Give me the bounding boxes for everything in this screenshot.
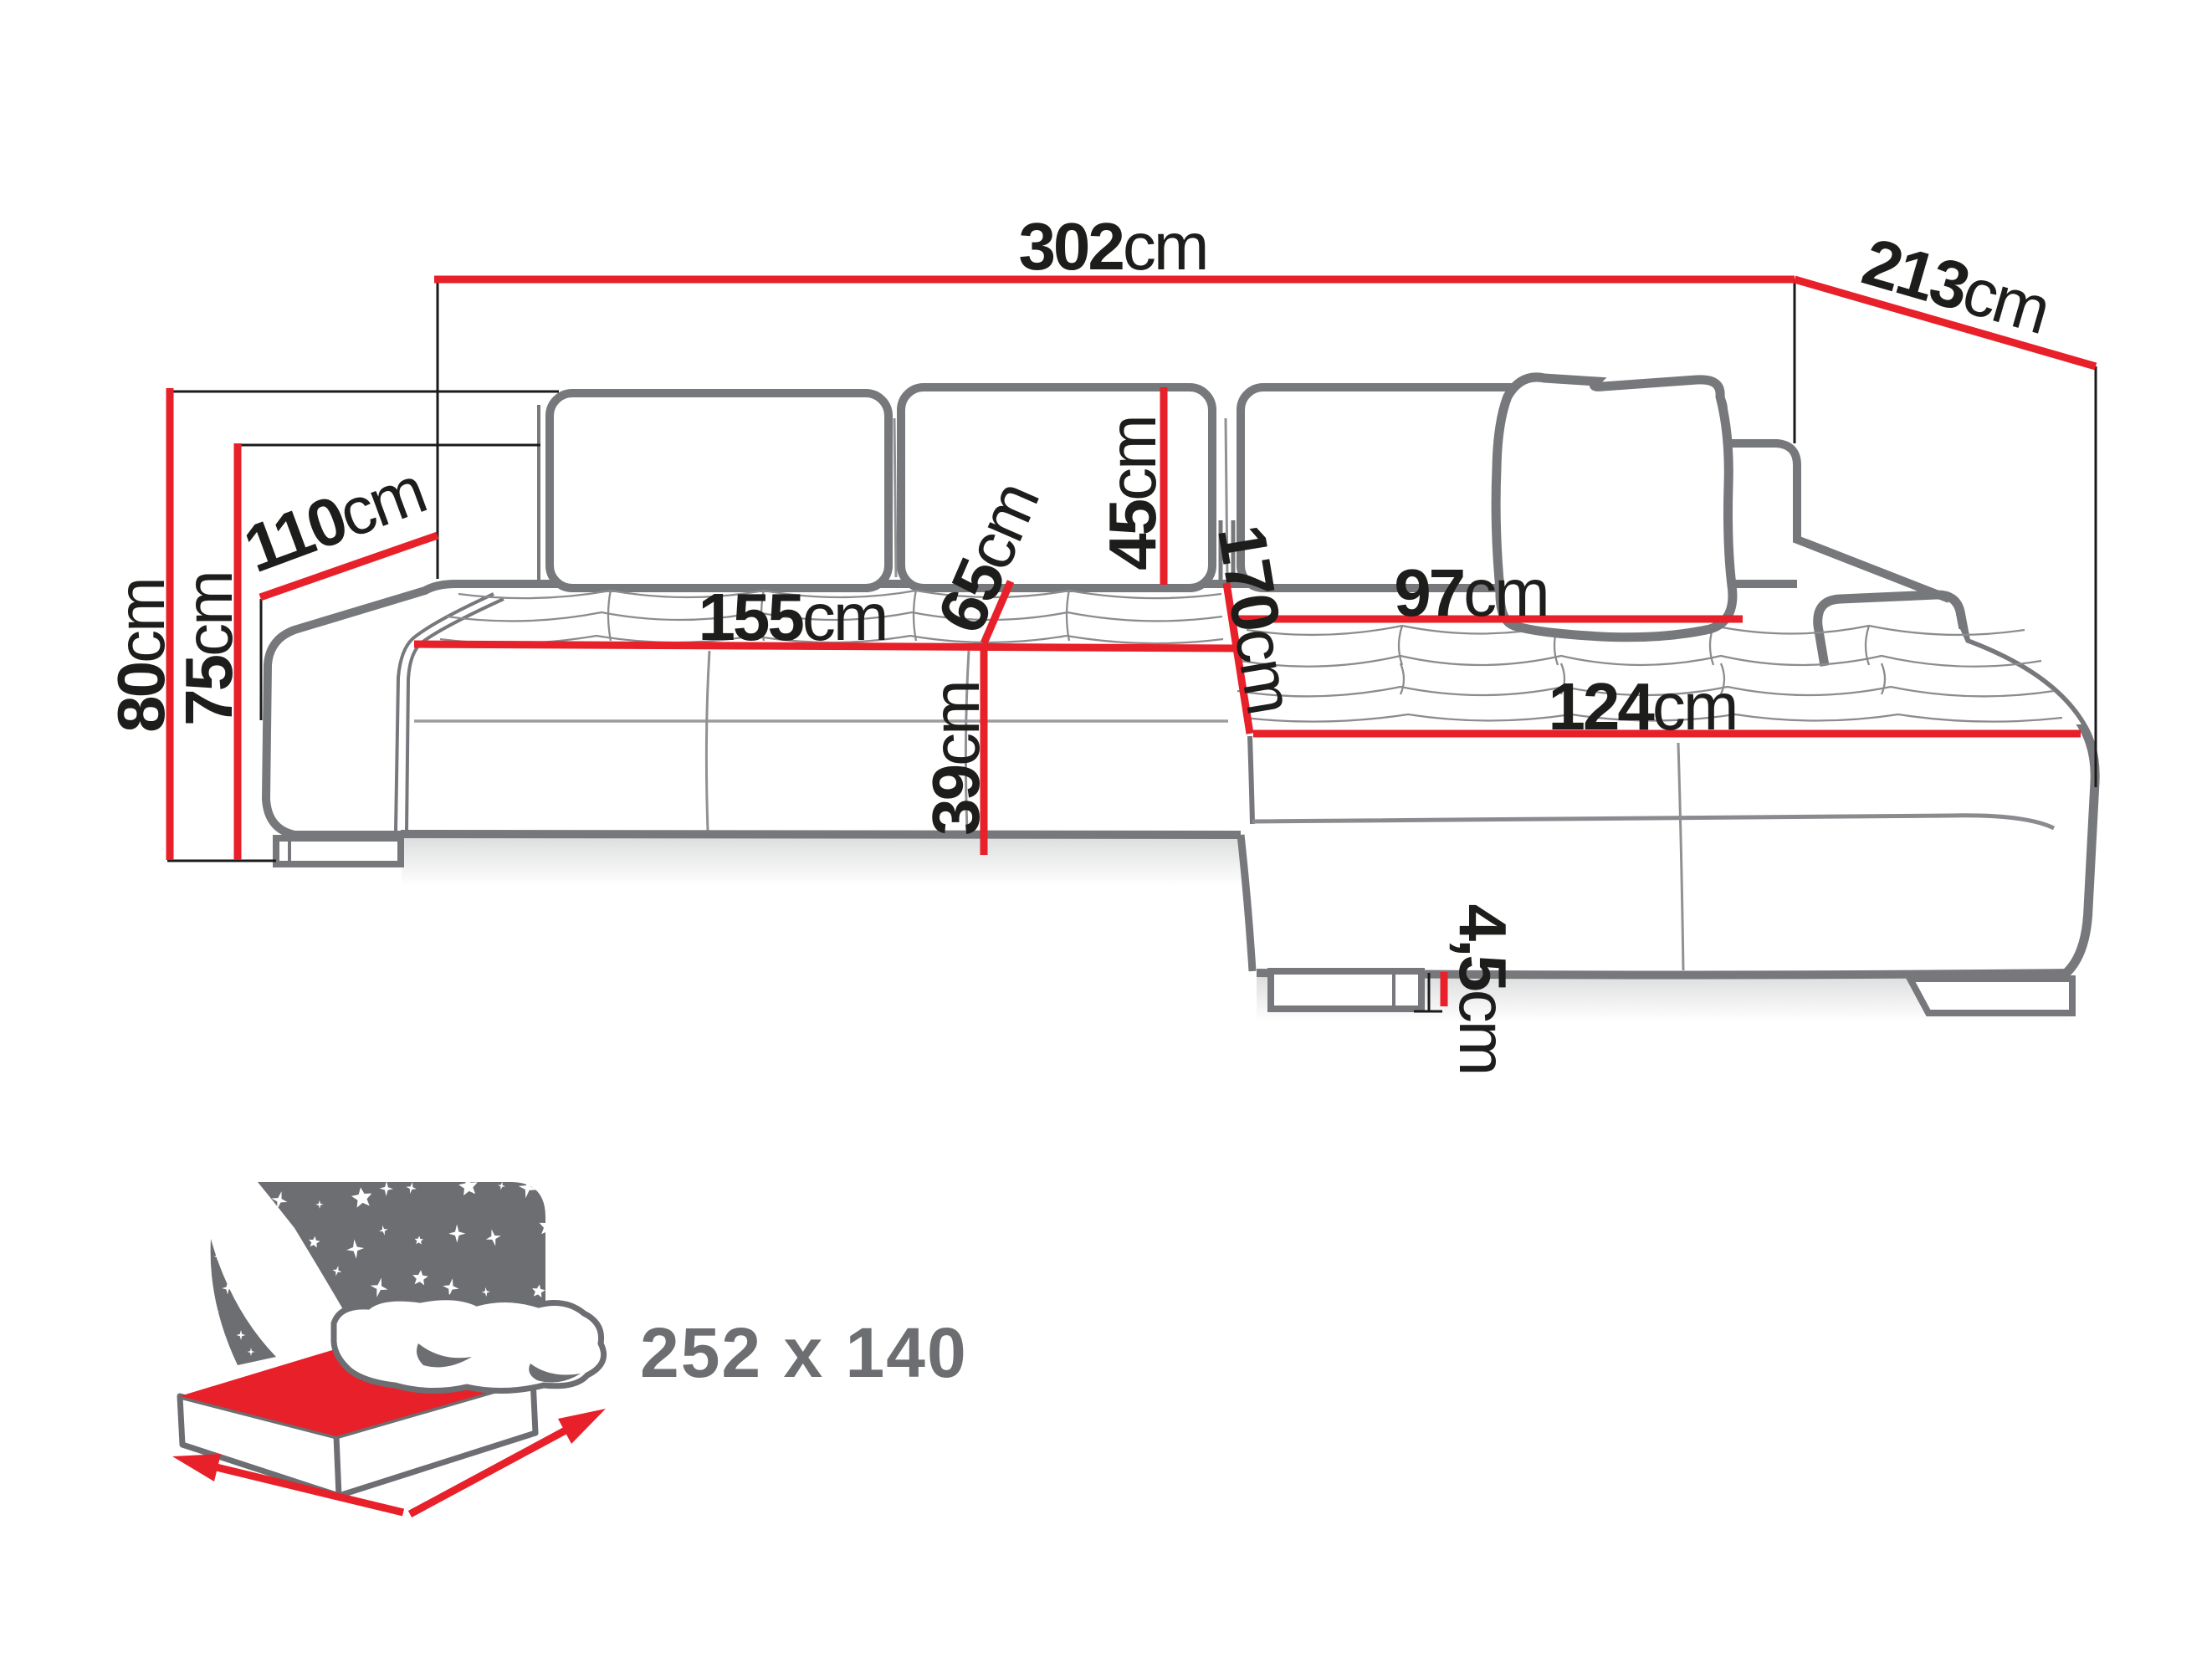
svg-text:155cm: 155cm bbox=[698, 580, 886, 654]
svg-text:80cm: 80cm bbox=[104, 579, 178, 733]
svg-text:97cm: 97cm bbox=[1394, 555, 1548, 630]
svg-text:39cm: 39cm bbox=[919, 682, 993, 836]
svg-text:4,5cm: 4,5cm bbox=[1446, 904, 1520, 1074]
svg-text:45cm: 45cm bbox=[1095, 417, 1170, 571]
svg-text:252 x 140: 252 x 140 bbox=[640, 1313, 968, 1392]
svg-text:124cm: 124cm bbox=[1548, 669, 1736, 744]
svg-text:302cm: 302cm bbox=[1018, 209, 1206, 284]
svg-text:75cm: 75cm bbox=[172, 572, 246, 726]
